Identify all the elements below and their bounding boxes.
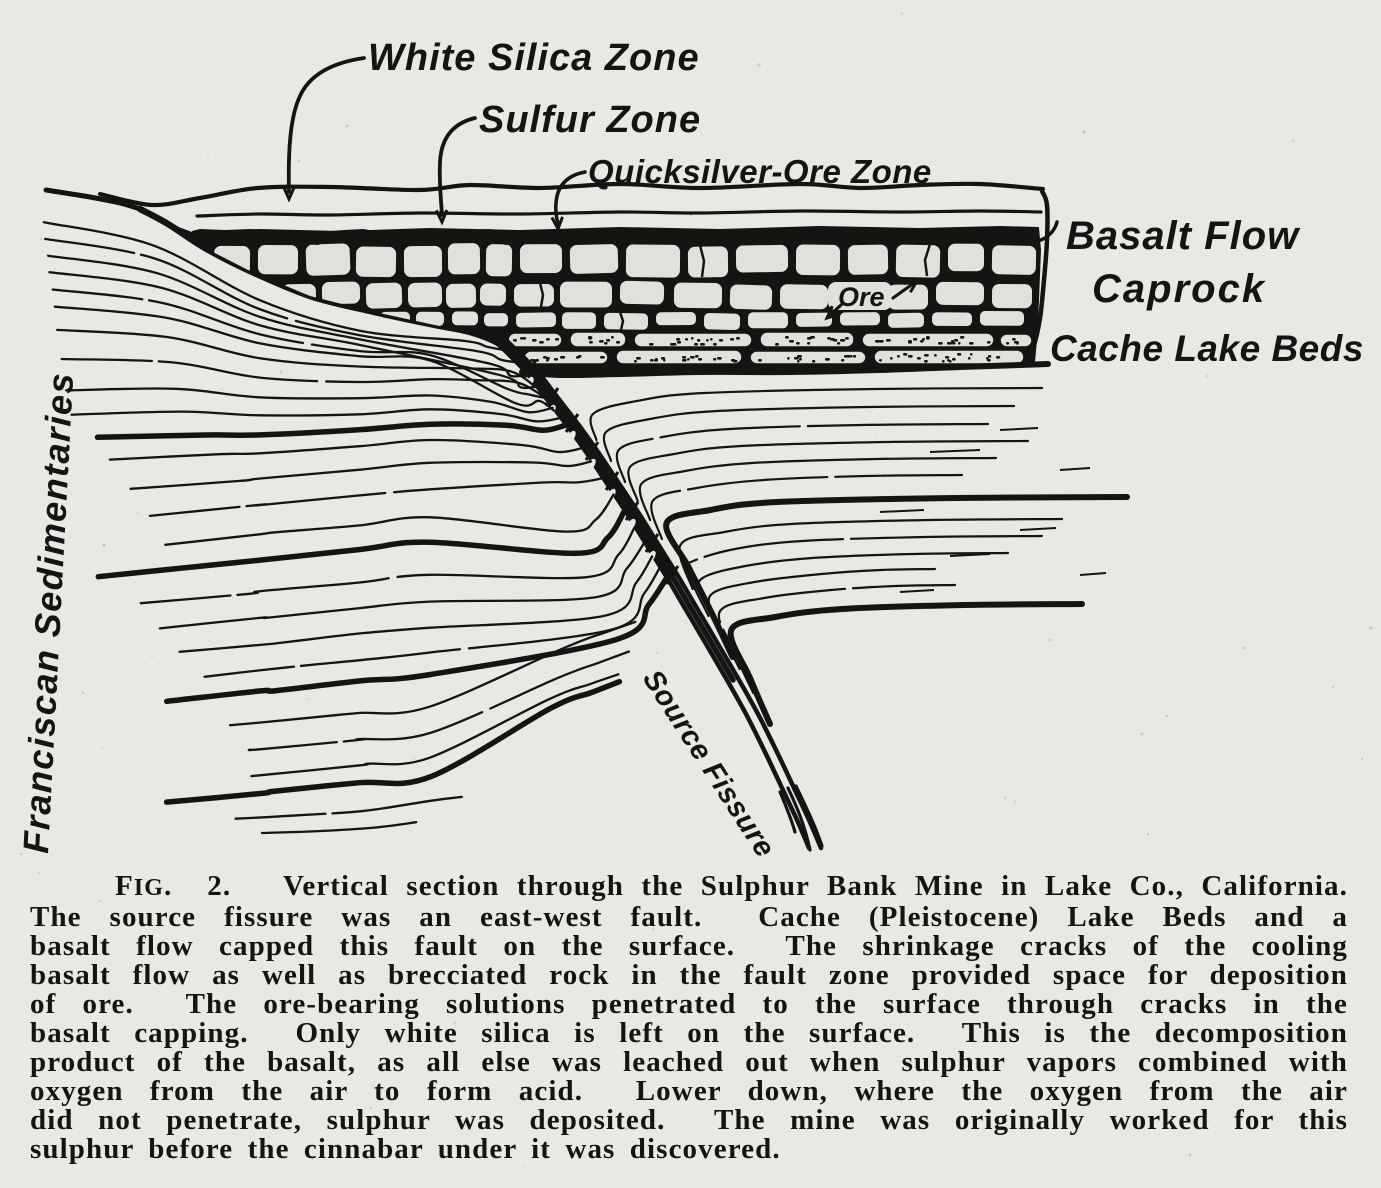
svg-text:Basalt Flow: Basalt Flow: [1066, 214, 1301, 258]
svg-text:White Silica Zone: White Silica Zone: [368, 37, 700, 79]
svg-text:Cache Lake Beds: Cache Lake Beds: [1050, 328, 1364, 369]
svg-text:Ore: Ore: [838, 282, 885, 312]
svg-text:Sulfur Zone: Sulfur Zone: [479, 99, 701, 141]
svg-text:Caprock: Caprock: [1092, 267, 1266, 311]
svg-text:Quicksilver-Ore Zone: Quicksilver-Ore Zone: [588, 153, 932, 190]
